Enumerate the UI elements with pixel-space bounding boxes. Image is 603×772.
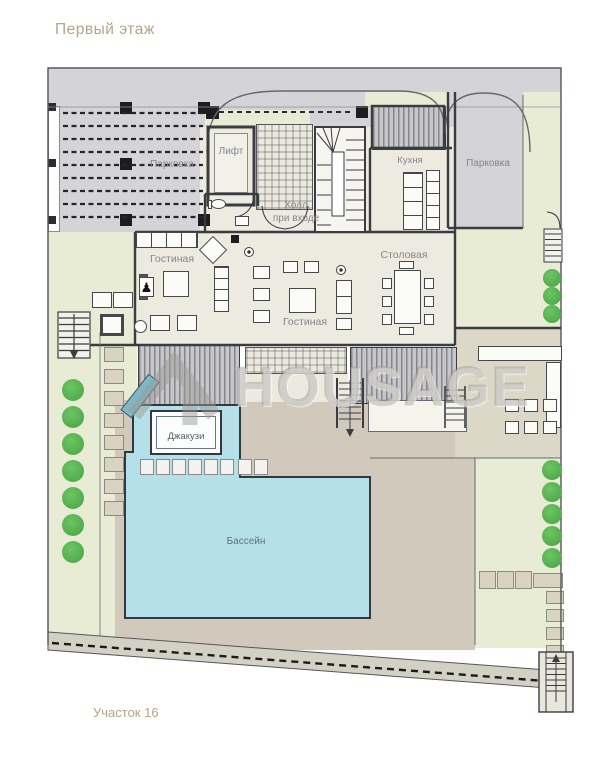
kitchen-counter bbox=[426, 170, 440, 230]
outdoor-chair bbox=[543, 421, 557, 434]
tree-icon bbox=[62, 433, 84, 455]
pool-step-tile bbox=[140, 459, 154, 475]
tree-icon bbox=[542, 548, 562, 568]
chair bbox=[424, 278, 434, 289]
washbasin bbox=[235, 216, 249, 226]
chair bbox=[382, 314, 392, 325]
armchair bbox=[150, 315, 170, 331]
sofa bbox=[136, 232, 198, 248]
chair bbox=[382, 296, 392, 307]
tree-icon bbox=[542, 504, 562, 524]
tree-icon bbox=[62, 379, 84, 401]
room-label-hall: Холл при входе bbox=[252, 200, 340, 225]
outdoor-chair bbox=[524, 421, 538, 434]
cabinet bbox=[214, 266, 229, 312]
toilet-tank bbox=[208, 200, 212, 209]
room-label-jacuzzi: Джакузи bbox=[152, 431, 220, 443]
coffee-table bbox=[163, 271, 189, 297]
coffee-table bbox=[289, 288, 316, 313]
light-fixture-icon bbox=[336, 265, 346, 275]
shaft-hatch bbox=[100, 314, 124, 336]
chair bbox=[382, 278, 392, 289]
storage-box bbox=[113, 292, 133, 308]
tree-icon bbox=[62, 406, 84, 428]
tree-icon bbox=[542, 526, 562, 546]
side-table bbox=[304, 261, 319, 273]
tree-icon bbox=[62, 541, 84, 563]
page-title: Первый этаж bbox=[55, 20, 255, 39]
armchair bbox=[177, 315, 197, 331]
room-label-kitchen: Кухня bbox=[378, 155, 442, 167]
room-label-living-center: Гостиная bbox=[260, 316, 350, 329]
tree-icon bbox=[542, 482, 562, 502]
tree-icon bbox=[543, 269, 561, 287]
watermark-text: HOUSAGE bbox=[234, 354, 564, 419]
room-label-parking-right: Парковка bbox=[446, 158, 530, 171]
room-label-dining: Столовая bbox=[362, 249, 446, 262]
tree-icon bbox=[542, 460, 562, 480]
side-table bbox=[283, 261, 298, 273]
room-label-elevator: Лифт bbox=[206, 146, 256, 159]
floor-plan-page: Первый этаж Участок 16 bbox=[0, 0, 603, 772]
pool-step-tile bbox=[172, 459, 186, 475]
storage-box bbox=[92, 292, 112, 308]
room-label-living-left: Гостиная bbox=[127, 253, 217, 266]
chair bbox=[399, 327, 414, 335]
room-label-parking-left: Парковка bbox=[127, 159, 217, 172]
pillar-icon bbox=[231, 235, 239, 243]
room-label-pool: Бассейн bbox=[206, 536, 286, 549]
tree-icon bbox=[543, 305, 561, 323]
chair bbox=[424, 296, 434, 307]
armchair bbox=[253, 266, 270, 279]
light-fixture-icon bbox=[244, 247, 254, 257]
armchair bbox=[253, 288, 270, 301]
tree-icon bbox=[62, 487, 84, 509]
wc-sign-person-icon: ♟ bbox=[139, 277, 154, 297]
pool-step-tile bbox=[238, 459, 252, 475]
sofa bbox=[336, 280, 352, 314]
dining-table bbox=[394, 270, 421, 324]
tree-icon bbox=[543, 287, 561, 305]
side-table-round bbox=[134, 320, 147, 333]
chair bbox=[424, 314, 434, 325]
kitchen-counter bbox=[403, 172, 423, 230]
watermark-house-logo-icon bbox=[122, 345, 237, 430]
plot-label: Участок 16 bbox=[93, 705, 213, 721]
pool-step-tile bbox=[188, 459, 202, 475]
pool-step-tile bbox=[156, 459, 170, 475]
pool-step-tile bbox=[220, 459, 234, 475]
toilet bbox=[211, 199, 226, 209]
outdoor-chair bbox=[505, 421, 519, 434]
tree-icon bbox=[62, 460, 84, 482]
tree-icon bbox=[62, 514, 84, 536]
pool-step-tile bbox=[204, 459, 218, 475]
chair bbox=[399, 261, 414, 269]
pool-step-tile bbox=[254, 459, 268, 475]
